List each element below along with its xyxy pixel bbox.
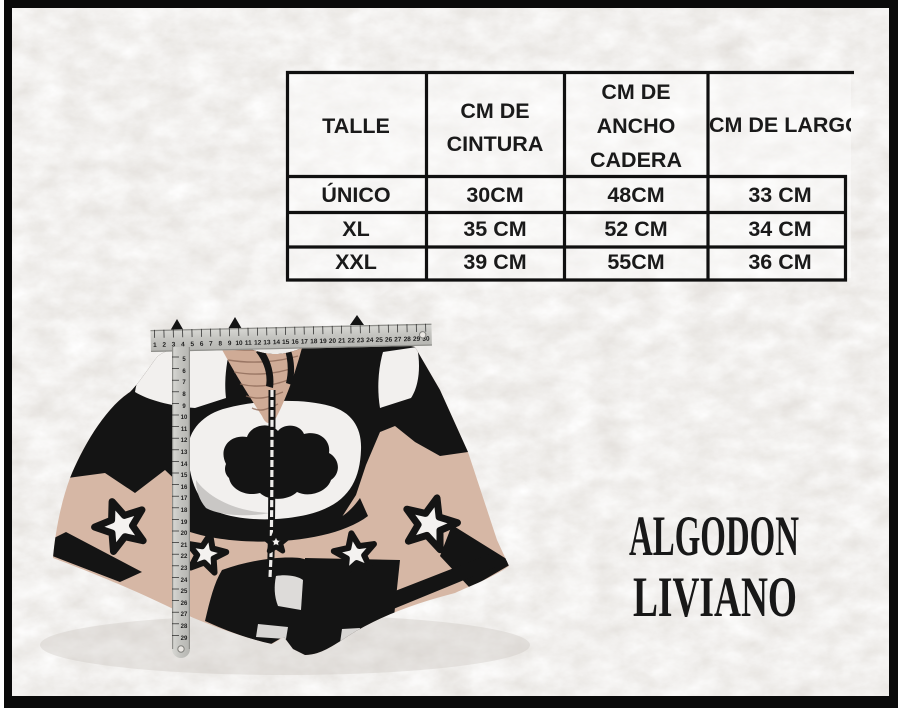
- svg-text:CADERA: CADERA: [590, 148, 682, 172]
- svg-text:ANCHO: ANCHO: [597, 114, 676, 138]
- svg-text:CM DE: CM DE: [460, 99, 529, 123]
- svg-text:14: 14: [181, 462, 188, 468]
- svg-text:CM DE: CM DE: [601, 80, 670, 104]
- svg-text:8: 8: [218, 340, 222, 347]
- svg-text:36 CM: 36 CM: [748, 250, 811, 274]
- svg-text:2: 2: [162, 342, 166, 349]
- svg-text:19: 19: [181, 520, 188, 526]
- svg-text:13: 13: [263, 339, 271, 346]
- svg-text:28: 28: [404, 336, 412, 343]
- svg-text:25: 25: [375, 337, 383, 344]
- svg-text:24: 24: [366, 337, 374, 344]
- svg-text:27: 27: [181, 612, 188, 618]
- svg-text:29: 29: [413, 336, 421, 343]
- svg-text:34 CM: 34 CM: [748, 217, 811, 241]
- svg-text:23: 23: [181, 566, 188, 572]
- svg-text:9: 9: [228, 340, 232, 347]
- svg-text:14: 14: [273, 339, 281, 346]
- svg-text:15: 15: [282, 339, 290, 346]
- svg-text:7: 7: [209, 341, 213, 348]
- svg-text:11: 11: [181, 427, 188, 433]
- svg-text:30CM: 30CM: [466, 183, 523, 207]
- svg-text:33 CM: 33 CM: [748, 183, 811, 207]
- svg-text:18: 18: [310, 338, 318, 345]
- svg-text:XXL: XXL: [335, 250, 377, 274]
- svg-text:16: 16: [181, 485, 188, 491]
- svg-text:13: 13: [181, 450, 188, 456]
- svg-text:ÚNICO: ÚNICO: [321, 182, 390, 207]
- svg-text:24: 24: [181, 578, 188, 584]
- svg-text:26: 26: [181, 601, 188, 607]
- svg-text:48CM: 48CM: [607, 183, 664, 207]
- svg-text:19: 19: [319, 338, 327, 345]
- svg-text:TALLE: TALLE: [322, 114, 390, 138]
- svg-text:12: 12: [254, 339, 262, 346]
- svg-text:CM DE LARGO: CM DE LARGO: [709, 113, 862, 137]
- svg-text:23: 23: [357, 337, 365, 344]
- svg-text:20: 20: [181, 531, 188, 537]
- svg-text:29: 29: [181, 636, 188, 642]
- svg-text:15: 15: [181, 473, 188, 479]
- svg-text:LIVIANO: LIVIANO: [633, 566, 797, 629]
- svg-text:5: 5: [190, 341, 194, 348]
- svg-text:ALGODON: ALGODON: [629, 505, 799, 568]
- svg-text:52 CM: 52 CM: [604, 217, 667, 241]
- svg-text:10: 10: [181, 415, 188, 421]
- svg-text:XL: XL: [342, 217, 369, 241]
- svg-text:39 CM: 39 CM: [463, 250, 526, 274]
- svg-text:55CM: 55CM: [607, 250, 664, 274]
- svg-text:10: 10: [235, 340, 243, 347]
- svg-text:11: 11: [245, 340, 252, 347]
- svg-text:20: 20: [329, 338, 337, 345]
- svg-text:22: 22: [348, 337, 356, 344]
- svg-text:25: 25: [181, 589, 188, 595]
- svg-text:18: 18: [181, 508, 188, 514]
- svg-text:22: 22: [181, 554, 188, 560]
- svg-text:35 CM: 35 CM: [463, 217, 526, 241]
- svg-text:17: 17: [301, 338, 309, 345]
- svg-text:12: 12: [181, 438, 188, 444]
- svg-text:28: 28: [181, 624, 188, 630]
- svg-text:16: 16: [291, 339, 299, 346]
- svg-text:1: 1: [153, 342, 157, 349]
- svg-text:6: 6: [200, 341, 204, 348]
- svg-text:26: 26: [385, 337, 393, 344]
- svg-text:17: 17: [181, 496, 188, 502]
- svg-text:27: 27: [394, 336, 402, 343]
- svg-text:21: 21: [338, 338, 346, 345]
- svg-text:21: 21: [181, 543, 188, 549]
- svg-text:CINTURA: CINTURA: [447, 132, 544, 156]
